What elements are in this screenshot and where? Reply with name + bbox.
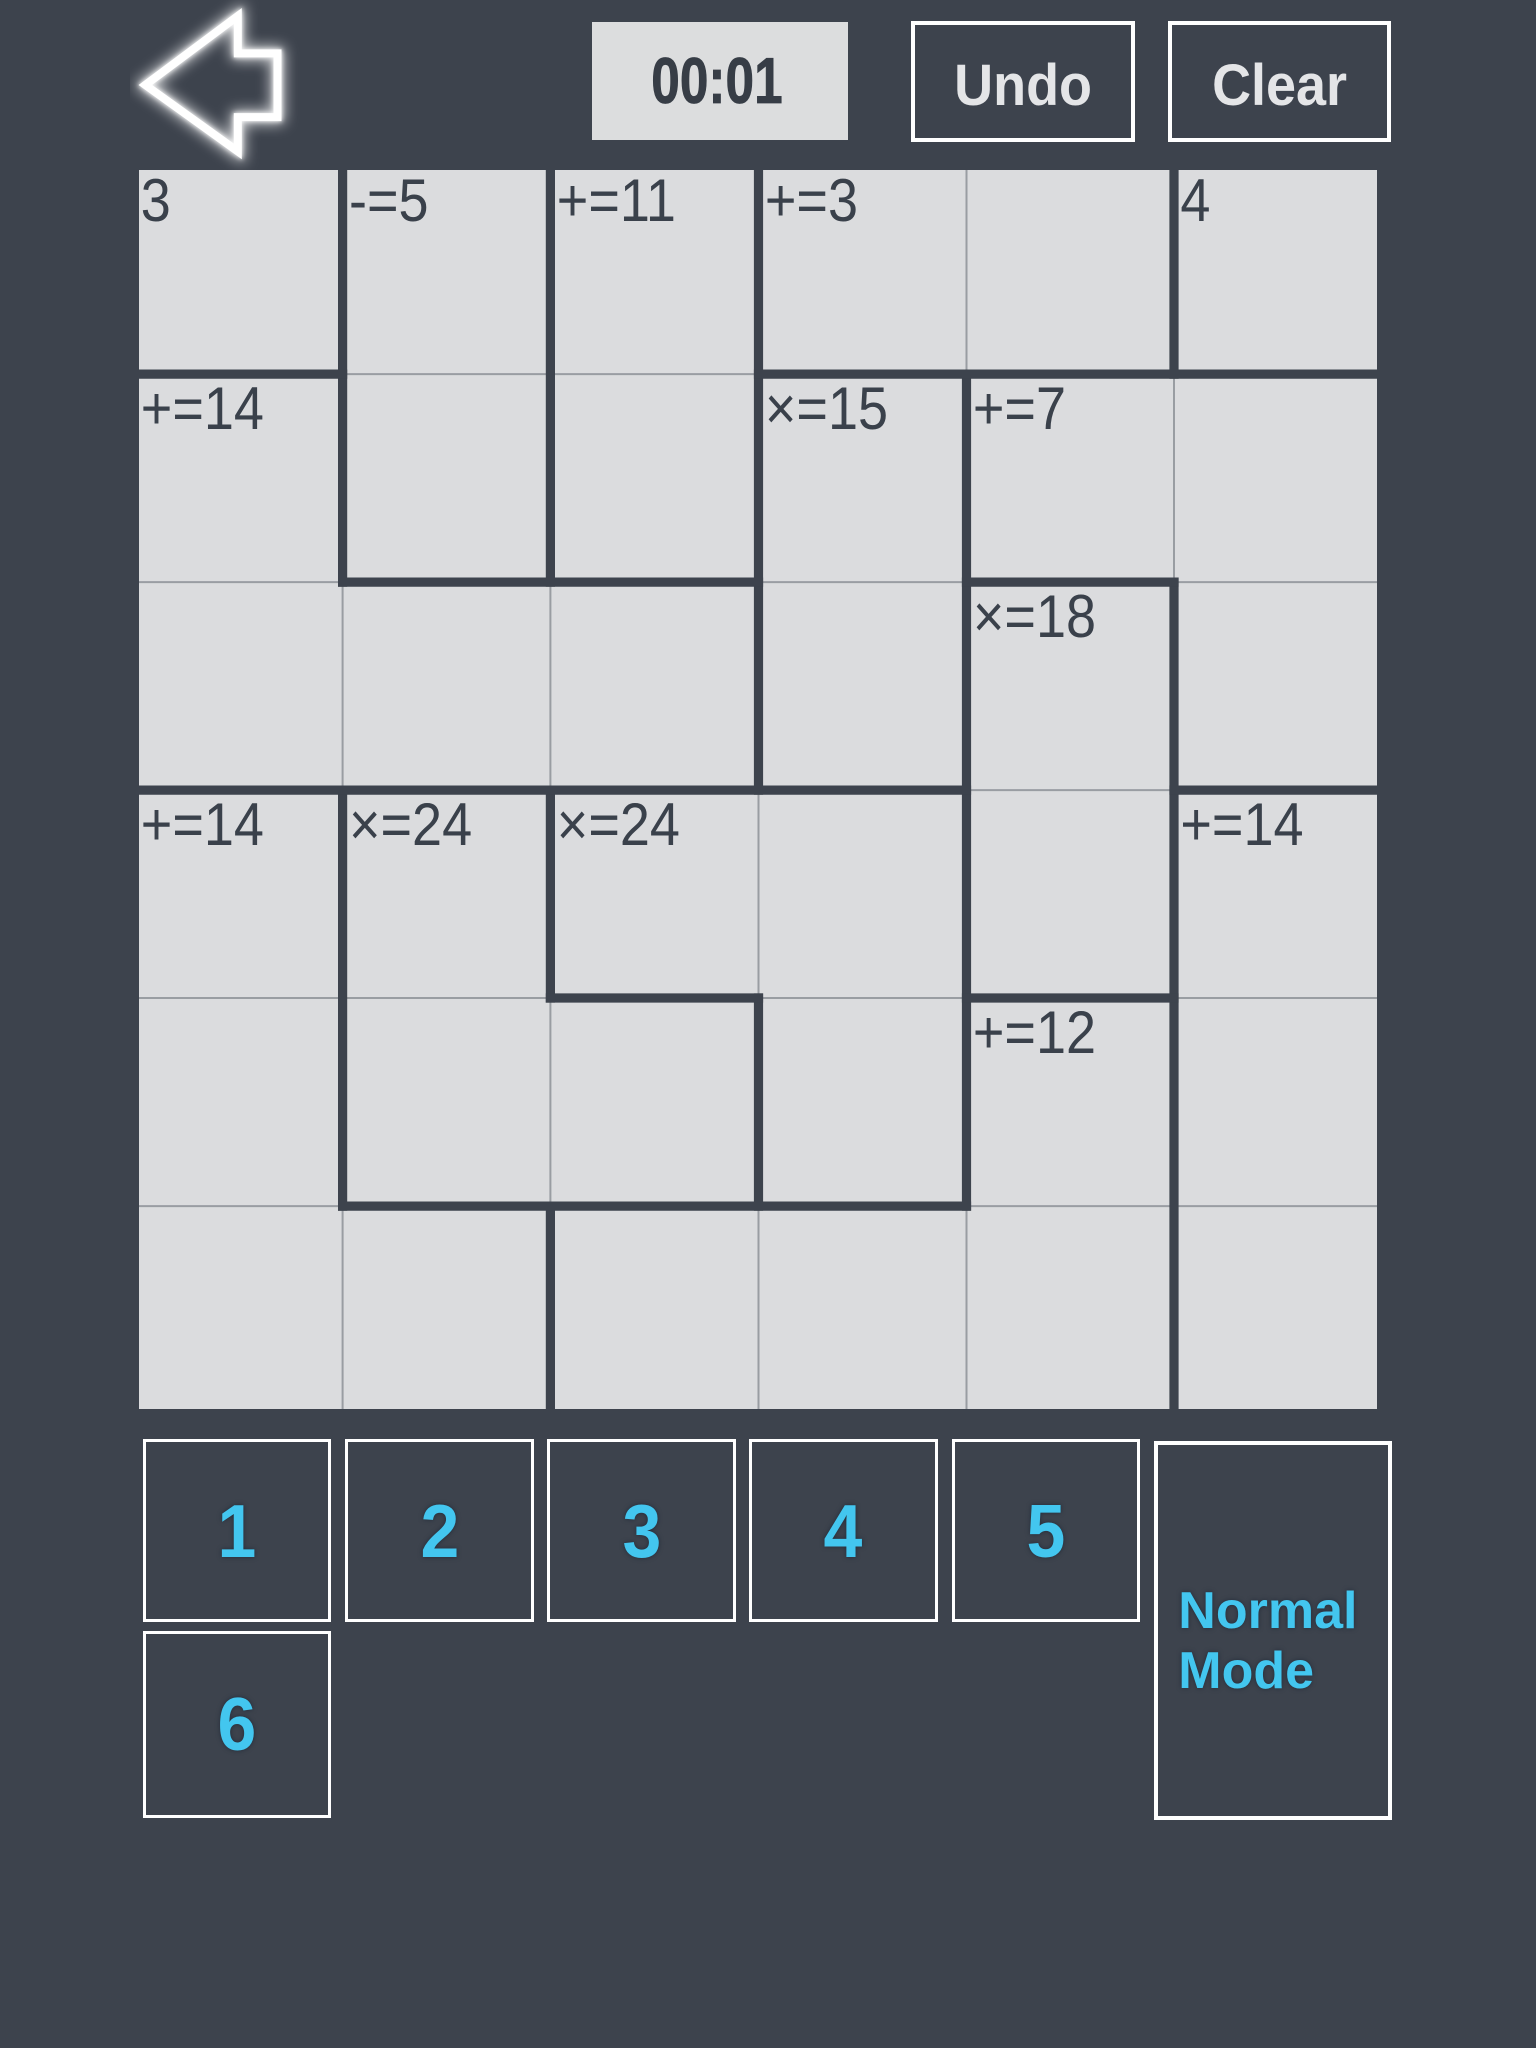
svg-text:+=7: +=7 <box>973 376 1066 443</box>
svg-text:×=18: ×=18 <box>973 584 1096 651</box>
svg-text:+=11: +=11 <box>557 170 676 235</box>
svg-text:×=15: ×=15 <box>765 376 888 443</box>
svg-text:4: 4 <box>1180 170 1210 235</box>
svg-text:+=3: +=3 <box>765 170 858 235</box>
svg-text:+=14: +=14 <box>141 376 264 443</box>
svg-text:+=14: +=14 <box>141 792 264 859</box>
svg-text:-=5: -=5 <box>349 170 429 235</box>
svg-text:×=24: ×=24 <box>349 792 472 859</box>
svg-text:+=12: +=12 <box>973 1000 1096 1067</box>
svg-text:×=24: ×=24 <box>557 792 680 859</box>
svg-text:3: 3 <box>141 170 171 235</box>
svg-text:+=14: +=14 <box>1180 792 1303 859</box>
